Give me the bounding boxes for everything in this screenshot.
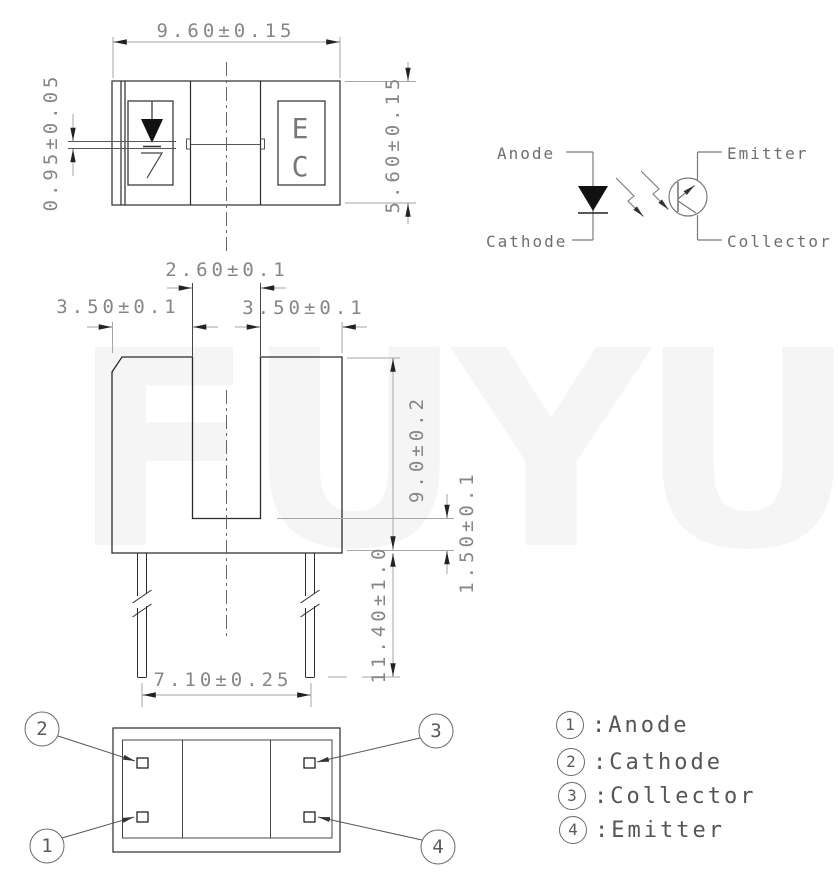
dim-3-50-left [87,322,218,353]
dim-label-slot-width: 2.60±0.1 [127,259,327,281]
legend-circle-2: 2 [557,748,585,776]
schematic-cathode-label: Cathode [486,232,567,251]
collector-mark: C [280,150,320,183]
legend-item-emitter: 4 :Emitter [559,816,725,844]
callout-number-cathode: 2 [25,712,59,746]
pin-callout-circles [25,712,455,864]
bottom-view-drawing [113,728,340,852]
callout-number-anode: 1 [30,829,64,863]
dim-2-60 [167,283,286,356]
phototransistor-symbol [669,178,707,216]
pad-anode [137,812,148,822]
dim-label-slot-floor: 1.50±0.1 [456,432,478,632]
dim-label-width: 9.60±0.15 [126,20,326,42]
bottom-view-outline [113,728,340,852]
legend-circle-3: 3 [558,782,586,810]
pad-collector [304,758,315,768]
pad-cathode [137,758,148,768]
led-symbol-schematic [578,186,608,213]
dim-label-left-tower: 3.50±0.1 [18,296,218,318]
top-view-aperture [68,139,265,149]
schematic-emitter-label: Emitter [727,144,808,163]
dim-3-50-right [235,322,367,353]
schematic-anode-label: Anode [497,144,555,163]
schematic-collector-label: Collector [727,232,832,251]
dim-label-aperture: 0.95±0.05 [40,42,62,242]
legend-item-collector: 3 :Collector [558,782,756,810]
dim-label-body-height: 9.0±0.2 [406,349,428,549]
legend-item-cathode: 2 :Cathode [557,748,723,776]
legend-item-anode: 1 :Anode [556,711,689,739]
legend-label-emitter: :Emitter [595,818,725,843]
legend-circle-1: 1 [556,711,584,739]
led-diode-symbol [141,101,163,178]
callout-number-emitter: 4 [421,830,455,864]
dim-label-lead-pitch: 7.10±0.25 [123,669,323,691]
dim-label-right-tower: 3.50±0.1 [204,297,404,319]
dim-5-60 [345,62,416,224]
emitter-mark: E [280,112,320,145]
dim-label-height: 5.60±0.15 [382,44,404,244]
legend-circle-4: 4 [559,816,587,844]
dim-label-lead-length: 11.40±1.0 [368,514,390,714]
legend-label-collector: :Collector [594,784,756,809]
pad-emitter [304,812,315,822]
technical-drawing-page: FUYU [0,0,838,878]
light-arrows-icon [616,171,669,217]
legend-label-cathode: :Cathode [593,750,723,775]
legend-label-anode: :Anode [592,713,689,738]
callout-number-collector: 3 [419,714,453,748]
